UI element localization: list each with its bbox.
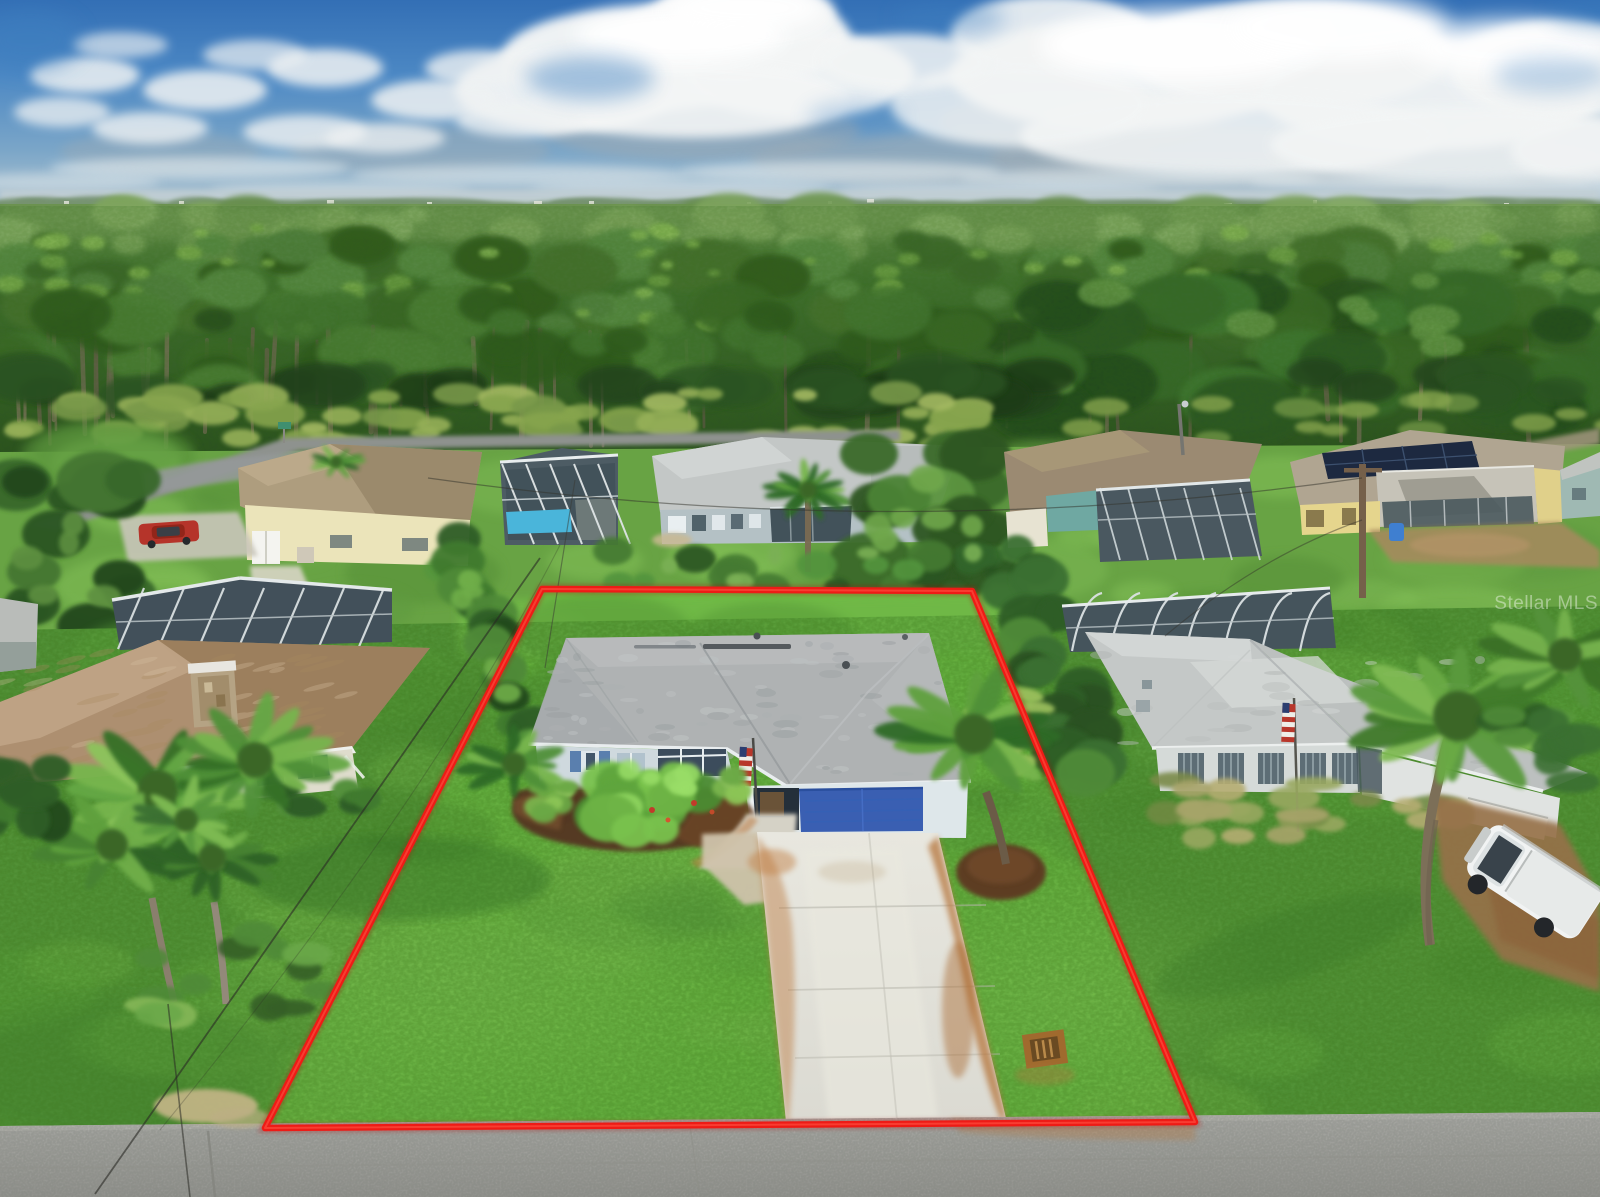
svg-text:Stellar MLS: Stellar MLS — [1494, 593, 1598, 614]
